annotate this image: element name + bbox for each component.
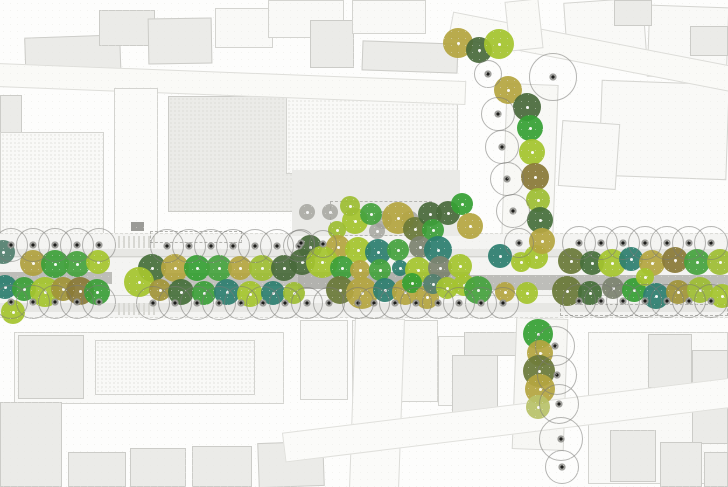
tree-center-dot bbox=[507, 89, 510, 92]
building bbox=[95, 340, 255, 395]
existing-tree-trunk-dot bbox=[28, 297, 38, 307]
tree-center-dot bbox=[414, 228, 417, 231]
tree-center-dot bbox=[341, 267, 344, 270]
existing-tree bbox=[694, 226, 728, 260]
building bbox=[68, 452, 126, 487]
building bbox=[352, 0, 426, 34]
existing-tree-trunk-dot bbox=[514, 238, 524, 248]
existing-tree-trunk-dot bbox=[556, 434, 566, 444]
existing-tree-trunk-dot bbox=[502, 174, 512, 184]
existing-tree bbox=[694, 284, 728, 318]
tree-center-dot bbox=[417, 269, 420, 272]
existing-tree bbox=[504, 228, 534, 258]
tree-center-dot bbox=[719, 261, 722, 264]
planted-tree bbox=[451, 193, 473, 215]
existing-tree-trunk-dot bbox=[411, 298, 421, 308]
tree-center-dot bbox=[644, 276, 647, 279]
existing-tree-trunk-dot bbox=[258, 298, 268, 308]
tree-center-dot bbox=[337, 246, 340, 249]
planted-tree bbox=[517, 115, 543, 141]
tree-center-dot bbox=[478, 49, 481, 52]
tree-center-dot bbox=[537, 199, 540, 202]
existing-tree-trunk-dot bbox=[94, 240, 104, 250]
existing-tree-trunk-dot bbox=[557, 462, 567, 472]
tree-center-dot bbox=[429, 213, 432, 216]
existing-tree-trunk-dot bbox=[250, 241, 260, 251]
planted-tree bbox=[457, 213, 483, 239]
tree-center-dot bbox=[151, 267, 154, 270]
existing-tree-trunk-dot bbox=[296, 238, 306, 248]
tree-center-dot bbox=[459, 265, 462, 268]
tree-center-dot bbox=[696, 261, 699, 264]
existing-tree-trunk-dot bbox=[618, 296, 628, 306]
existing-tree bbox=[487, 287, 519, 319]
tree-center-dot bbox=[397, 217, 400, 220]
existing-tree-trunk-dot bbox=[272, 241, 282, 251]
existing-tree-trunk-dot bbox=[497, 142, 507, 152]
crosswalk-dark-mark bbox=[131, 222, 144, 231]
building bbox=[286, 94, 458, 174]
tree-center-dot bbox=[541, 240, 544, 243]
existing-tree-trunk-dot bbox=[476, 298, 486, 308]
building bbox=[0, 132, 104, 236]
building bbox=[0, 95, 22, 133]
tree-center-dot bbox=[239, 267, 242, 270]
tree-center-dot bbox=[570, 260, 573, 263]
tree-center-dot bbox=[261, 267, 264, 270]
tree-center-dot bbox=[283, 267, 286, 270]
building bbox=[130, 448, 186, 487]
existing-tree-trunk-dot bbox=[706, 238, 716, 248]
tree-center-dot bbox=[457, 42, 460, 45]
building bbox=[558, 120, 620, 190]
existing-tree bbox=[309, 230, 337, 258]
existing-tree-trunk-dot bbox=[318, 239, 328, 249]
building bbox=[148, 17, 213, 64]
existing-tree-trunk-dot bbox=[192, 298, 202, 308]
tree-center-dot bbox=[336, 229, 339, 232]
tree-center-dot bbox=[611, 262, 614, 265]
tree-center-dot bbox=[349, 205, 352, 208]
existing-tree bbox=[481, 97, 515, 131]
existing-tree-trunk-dot bbox=[684, 238, 694, 248]
tree-center-dot bbox=[591, 262, 594, 265]
existing-tree bbox=[82, 228, 116, 262]
existing-tree bbox=[485, 130, 519, 164]
planted-tree bbox=[340, 196, 360, 216]
building bbox=[614, 0, 652, 26]
tree-center-dot bbox=[419, 246, 422, 249]
planted-tree bbox=[299, 204, 315, 220]
existing-tree-trunk-dot bbox=[324, 298, 334, 308]
building bbox=[99, 10, 155, 46]
existing-tree-trunk-dot bbox=[302, 298, 312, 308]
tree-center-dot bbox=[357, 249, 360, 252]
existing-tree bbox=[490, 162, 524, 196]
existing-tree-trunk-dot bbox=[662, 238, 672, 248]
existing-tree-trunk-dot bbox=[6, 297, 16, 307]
tree-center-dot bbox=[534, 176, 537, 179]
existing-tree-trunk-dot bbox=[662, 296, 672, 306]
building bbox=[660, 442, 702, 487]
tree-center-dot bbox=[651, 262, 654, 265]
building bbox=[310, 20, 354, 68]
tree-center-dot bbox=[354, 220, 357, 223]
existing-tree-trunk-dot bbox=[483, 69, 493, 79]
existing-tree-trunk-dot bbox=[433, 298, 443, 308]
building bbox=[690, 26, 728, 56]
tree-center-dot bbox=[399, 267, 402, 270]
planted-tree bbox=[387, 239, 409, 261]
existing-tree-trunk-dot bbox=[50, 240, 60, 250]
tree-center-dot bbox=[499, 255, 502, 258]
planted-tree bbox=[322, 204, 338, 220]
site-plan-map bbox=[0, 0, 728, 487]
existing-tree-trunk-dot bbox=[148, 298, 158, 308]
tree-center-dot bbox=[321, 261, 324, 264]
planted-tree bbox=[484, 29, 514, 59]
tree-center-dot bbox=[439, 267, 442, 270]
existing-tree-trunk-dot bbox=[72, 240, 82, 250]
tree-center-dot bbox=[432, 283, 435, 286]
tree-center-dot bbox=[218, 267, 221, 270]
building bbox=[192, 446, 252, 487]
existing-tree-trunk-dot bbox=[640, 238, 650, 248]
existing-tree-trunk-dot bbox=[280, 298, 290, 308]
tree-center-dot bbox=[531, 151, 534, 154]
existing-tree-trunk-dot bbox=[206, 241, 216, 251]
south-street-center bbox=[349, 317, 405, 487]
tree-center-dot bbox=[138, 281, 141, 284]
existing-tree bbox=[529, 53, 577, 101]
tree-center-dot bbox=[411, 282, 414, 285]
existing-tree-trunk-dot bbox=[640, 296, 650, 306]
existing-tree bbox=[496, 194, 530, 228]
tree-center-dot bbox=[76, 263, 79, 266]
existing-tree-trunk-dot bbox=[390, 298, 400, 308]
tree-center-dot bbox=[498, 43, 501, 46]
tree-center-dot bbox=[674, 259, 677, 262]
building bbox=[648, 334, 692, 388]
existing-tree-trunk-dot bbox=[554, 399, 564, 409]
planted-tree bbox=[521, 163, 549, 191]
existing-tree bbox=[474, 60, 502, 88]
building bbox=[704, 452, 728, 487]
existing-tree-trunk-dot bbox=[162, 241, 172, 251]
cross-street-west bbox=[114, 88, 158, 234]
building bbox=[0, 402, 62, 487]
existing-tree-trunk-dot bbox=[184, 241, 194, 251]
tree-center-dot bbox=[174, 267, 177, 270]
tree-center-dot bbox=[535, 256, 538, 259]
tree-center-dot bbox=[306, 211, 309, 214]
planted-tree bbox=[516, 282, 538, 304]
tree-center-dot bbox=[469, 225, 472, 228]
tree-center-dot bbox=[377, 251, 380, 254]
tree-center-dot bbox=[376, 230, 379, 233]
tree-center-dot bbox=[432, 229, 435, 232]
existing-tree-trunk-dot bbox=[596, 238, 606, 248]
existing-tree-trunk-dot bbox=[228, 241, 238, 251]
existing-tree bbox=[313, 287, 345, 319]
tree-center-dot bbox=[520, 261, 523, 264]
existing-tree-trunk-dot bbox=[684, 296, 694, 306]
existing-tree-trunk-dot bbox=[706, 296, 716, 306]
tree-center-dot bbox=[447, 212, 450, 215]
existing-tree bbox=[82, 285, 116, 319]
existing-tree-trunk-dot bbox=[454, 298, 464, 308]
existing-tree-trunk-dot bbox=[552, 370, 562, 380]
tree-center-dot bbox=[370, 213, 373, 216]
tree-center-dot bbox=[379, 269, 382, 272]
existing-tree-trunk-dot bbox=[236, 298, 246, 308]
existing-tree-trunk-dot bbox=[170, 298, 180, 308]
existing-tree-trunk-dot bbox=[94, 297, 104, 307]
tree-center-dot bbox=[359, 269, 362, 272]
existing-tree-trunk-dot bbox=[548, 72, 558, 82]
existing-tree-trunk-dot bbox=[6, 240, 16, 250]
existing-tree-trunk-dot bbox=[574, 238, 584, 248]
existing-tree-trunk-dot bbox=[369, 298, 379, 308]
building bbox=[215, 8, 273, 48]
building bbox=[300, 320, 348, 400]
tree-center-dot bbox=[397, 249, 400, 252]
planted-tree bbox=[360, 203, 382, 225]
tree-center-dot bbox=[196, 267, 199, 270]
existing-tree bbox=[545, 450, 579, 484]
tree-center-dot bbox=[461, 203, 464, 206]
tree-center-dot bbox=[526, 106, 529, 109]
existing-tree-trunk-dot bbox=[618, 238, 628, 248]
tree-center-dot bbox=[54, 263, 57, 266]
existing-tree-trunk-dot bbox=[28, 240, 38, 250]
existing-tree-trunk-dot bbox=[574, 296, 584, 306]
existing-tree-trunk-dot bbox=[50, 297, 60, 307]
tree-center-dot bbox=[526, 292, 529, 295]
building bbox=[610, 430, 656, 482]
tree-center-dot bbox=[437, 249, 440, 252]
existing-tree-trunk-dot bbox=[508, 206, 518, 216]
building bbox=[168, 96, 300, 212]
tree-center-dot bbox=[329, 211, 332, 214]
existing-tree-trunk-dot bbox=[214, 298, 224, 308]
tree-center-dot bbox=[529, 127, 532, 130]
planted-tree bbox=[369, 223, 385, 239]
existing-tree-trunk-dot bbox=[493, 109, 503, 119]
building bbox=[18, 335, 84, 399]
tree-center-dot bbox=[539, 219, 542, 222]
existing-tree-trunk-dot bbox=[596, 296, 606, 306]
existing-tree-trunk-dot bbox=[550, 341, 560, 351]
existing-tree-trunk-dot bbox=[498, 298, 508, 308]
existing-tree-trunk-dot bbox=[72, 297, 82, 307]
planted-tree bbox=[519, 139, 545, 165]
